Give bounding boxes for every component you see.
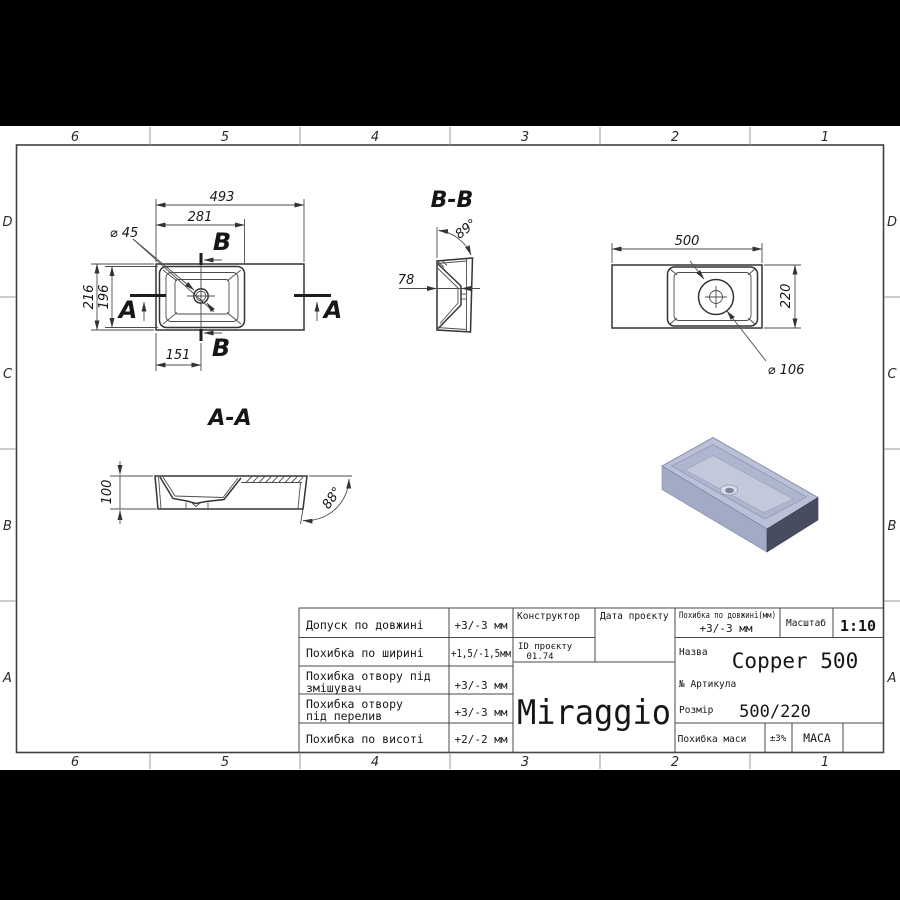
size-value: 500/220: [739, 702, 811, 722]
dim-angle-88: 88°: [320, 485, 346, 512]
zone-col-bottom: 1: [821, 755, 829, 770]
scale-label: Масштаб: [786, 618, 826, 629]
drawing-sheet: 6 5 4 3 2 1 6 5 4 3 2 1 D C B A D C B A: [0, 0, 900, 900]
tolerance-value: +3/-3 мм: [455, 619, 508, 632]
dim-height-100: 100: [100, 480, 115, 505]
product-name: Copper 500: [732, 649, 858, 673]
date-label: Дата проєкту: [600, 611, 669, 622]
dim-hole-106: ⌀ 106: [768, 363, 805, 378]
view-section-aa: A-A 100 88°: [100, 406, 352, 524]
zone-row-right: B: [888, 519, 897, 534]
tolerance-label: Похибка по ширині: [306, 646, 424, 660]
brand-logo: Miraggio: [517, 693, 671, 733]
zone-col-top: 1: [821, 130, 829, 145]
zone-col-bottom: 3: [521, 755, 529, 770]
tolerance-value: +2/-2 мм: [455, 733, 508, 746]
tolerance-label: Допуск по довжині: [306, 618, 424, 632]
section-letter-a: A: [322, 296, 343, 324]
view-section-bb: B-B 89° 78: [398, 188, 480, 332]
zone-row-right: D: [887, 215, 897, 230]
zone-col-top: 4: [371, 130, 379, 145]
project-id-label: ID проєкту: [518, 642, 573, 652]
dim-height-total: 216: [82, 285, 97, 310]
zone-row-right: A: [887, 671, 897, 686]
technical-drawing: 6 5 4 3 2 1 6 5 4 3 2 1 D C B A D C B A: [0, 0, 900, 900]
section-letter-b: B: [212, 334, 230, 362]
zone-col-top: 2: [671, 130, 679, 145]
length-tolerance-value: +3/-3 мм: [700, 622, 753, 635]
zone-col-bottom: 6: [71, 755, 79, 770]
title-block: Допуск по довжині +3/-3 мм Похибка по ши…: [299, 608, 884, 753]
article-label: № Артикула: [679, 679, 736, 690]
dim-hole-45: ⌀ 45: [110, 226, 139, 241]
zone-col-bottom: 5: [221, 755, 229, 770]
size-label: Розмір: [679, 705, 714, 716]
zone-row-left: B: [3, 519, 12, 534]
mass-tolerance-label: Похибка маси: [678, 734, 747, 745]
view-plan-left: B B A A 493 281 ⌀ 45 216: [82, 190, 342, 371]
view-title-aa: A-A: [206, 406, 251, 431]
dim-height-bowl: 196: [97, 285, 112, 310]
length-tolerance-label: Похибка по довжині(мм): [679, 610, 776, 621]
zone-col-bottom: 2: [671, 755, 679, 770]
tolerance-label: Похибка по висоті: [306, 732, 424, 746]
dim-depth-78: 78: [398, 273, 415, 288]
dim-angle-89: 89°: [453, 216, 480, 242]
zone-row-right: C: [887, 367, 897, 382]
zone-col-bottom: 4: [371, 755, 379, 770]
mass-tolerance-value: ±3%: [770, 734, 787, 744]
dim-width-bowl: 281: [188, 210, 213, 225]
letterbox-bottom: [0, 770, 900, 900]
letterbox-top: [0, 0, 900, 126]
zone-row-left: D: [2, 215, 12, 230]
view-plan-right: 500 220 ⌀ 106: [612, 234, 804, 378]
tolerance-value: +3/-3 мм: [455, 706, 508, 719]
section-cut-a: A A: [117, 296, 343, 325]
tolerance-value: +1,5/-1,5мм: [451, 647, 511, 660]
designer-label: Конструктор: [517, 611, 580, 622]
dim-offset: 151: [166, 348, 191, 363]
dim-width-total: 493: [210, 190, 235, 205]
name-label: Назва: [679, 647, 708, 658]
dim-width-500: 500: [675, 234, 700, 249]
tolerance-label-line2: змішувач: [306, 681, 361, 695]
project-id-value: 01.74: [526, 652, 553, 662]
section-letter-b: B: [213, 228, 231, 256]
scale-value: 1:10: [840, 617, 876, 635]
render-3d: [662, 438, 818, 553]
zone-col-top: 6: [71, 130, 79, 145]
tolerance-label-line2: під перелив: [306, 709, 382, 723]
render-drain-hole: [725, 488, 734, 493]
zone-row-left: C: [3, 367, 13, 382]
tolerance-value: +3/-3 мм: [455, 679, 508, 692]
view-title-bb: B-B: [431, 188, 474, 213]
section-letter-a: A: [117, 296, 138, 324]
zone-col-top: 3: [521, 130, 529, 145]
zone-row-left: A: [2, 671, 12, 686]
dim-height-220: 220: [779, 284, 794, 309]
zone-col-top: 5: [221, 130, 229, 145]
mass-label: МАСА: [803, 731, 831, 745]
